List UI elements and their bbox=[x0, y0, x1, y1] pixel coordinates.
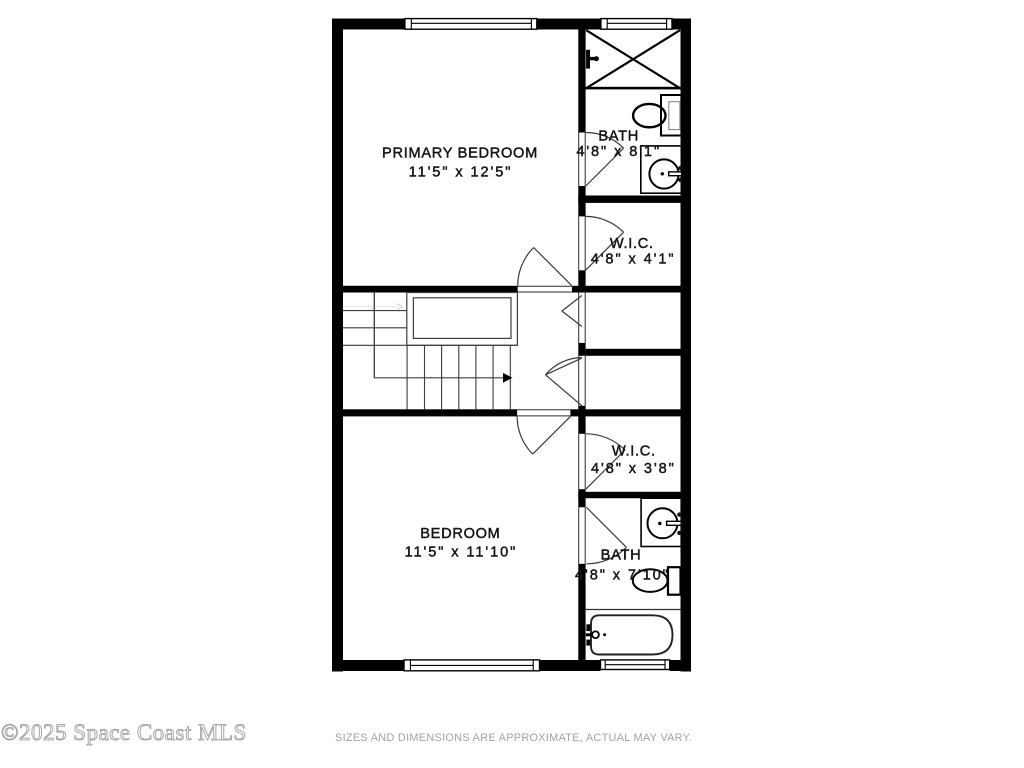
svg-text:4'8" x 8'1": 4'8" x 8'1" bbox=[576, 144, 661, 160]
svg-text:BEDROOM: BEDROOM bbox=[420, 526, 500, 542]
svg-text:11'5" x 11'10": 11'5" x 11'10" bbox=[405, 544, 518, 560]
svg-text:4'8" x 3'8": 4'8" x 3'8" bbox=[591, 461, 676, 477]
svg-text:BATH: BATH bbox=[598, 128, 639, 144]
svg-text:W.I.C.: W.I.C. bbox=[612, 444, 656, 460]
svg-text:4'8" x 4'1": 4'8" x 4'1" bbox=[591, 251, 676, 267]
svg-text:PRIMARY BEDROOM: PRIMARY BEDROOM bbox=[382, 146, 538, 162]
svg-text:W.I.C.: W.I.C. bbox=[610, 236, 654, 252]
svg-text:4'8" x 7'10": 4'8" x 7'10" bbox=[575, 567, 670, 583]
svg-text:BATH: BATH bbox=[601, 547, 642, 563]
svg-text:11'5" x 12'5": 11'5" x 12'5" bbox=[409, 165, 513, 181]
